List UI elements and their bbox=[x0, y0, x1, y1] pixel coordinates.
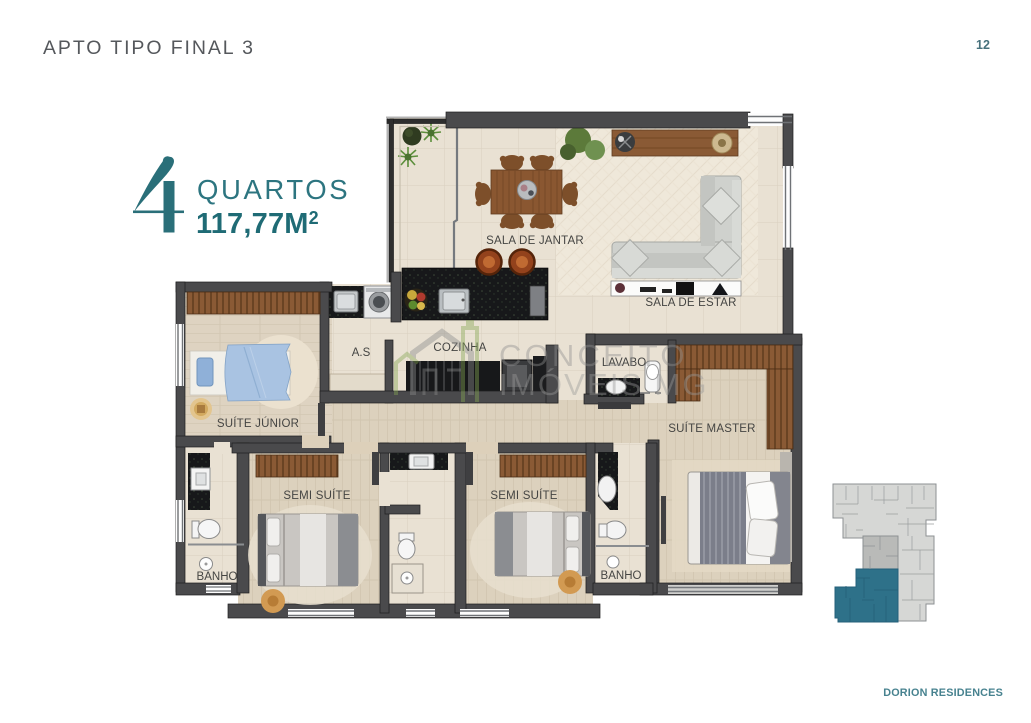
svg-text:DORION RESIDENCES: DORION RESIDENCES bbox=[883, 687, 1003, 699]
svg-text:117,77M2: 117,77M2 bbox=[196, 208, 319, 240]
svg-text:A.S: A.S bbox=[352, 347, 371, 359]
svg-text:SALA DE ESTAR: SALA DE ESTAR bbox=[645, 297, 736, 309]
svg-text:SALA DE JANTAR: SALA DE JANTAR bbox=[486, 235, 584, 247]
svg-text:QUARTOS: QUARTOS bbox=[197, 174, 350, 205]
svg-text:SEMI SUÍTE: SEMI SUÍTE bbox=[490, 489, 557, 502]
svg-text:SUÍTE MASTER: SUÍTE MASTER bbox=[668, 422, 755, 435]
svg-text:BANHO: BANHO bbox=[197, 571, 238, 583]
svg-text:IMÓVEIS MG: IMÓVEIS MG bbox=[499, 367, 709, 402]
svg-text:12: 12 bbox=[976, 38, 990, 52]
svg-text:APTO TIPO FINAL 3: APTO TIPO FINAL 3 bbox=[43, 37, 255, 59]
svg-text:SUÍTE JÚNIOR: SUÍTE JÚNIOR bbox=[217, 417, 299, 430]
svg-text:SEMI SUÍTE: SEMI SUÍTE bbox=[283, 489, 350, 502]
svg-text:BANHO: BANHO bbox=[601, 570, 642, 582]
